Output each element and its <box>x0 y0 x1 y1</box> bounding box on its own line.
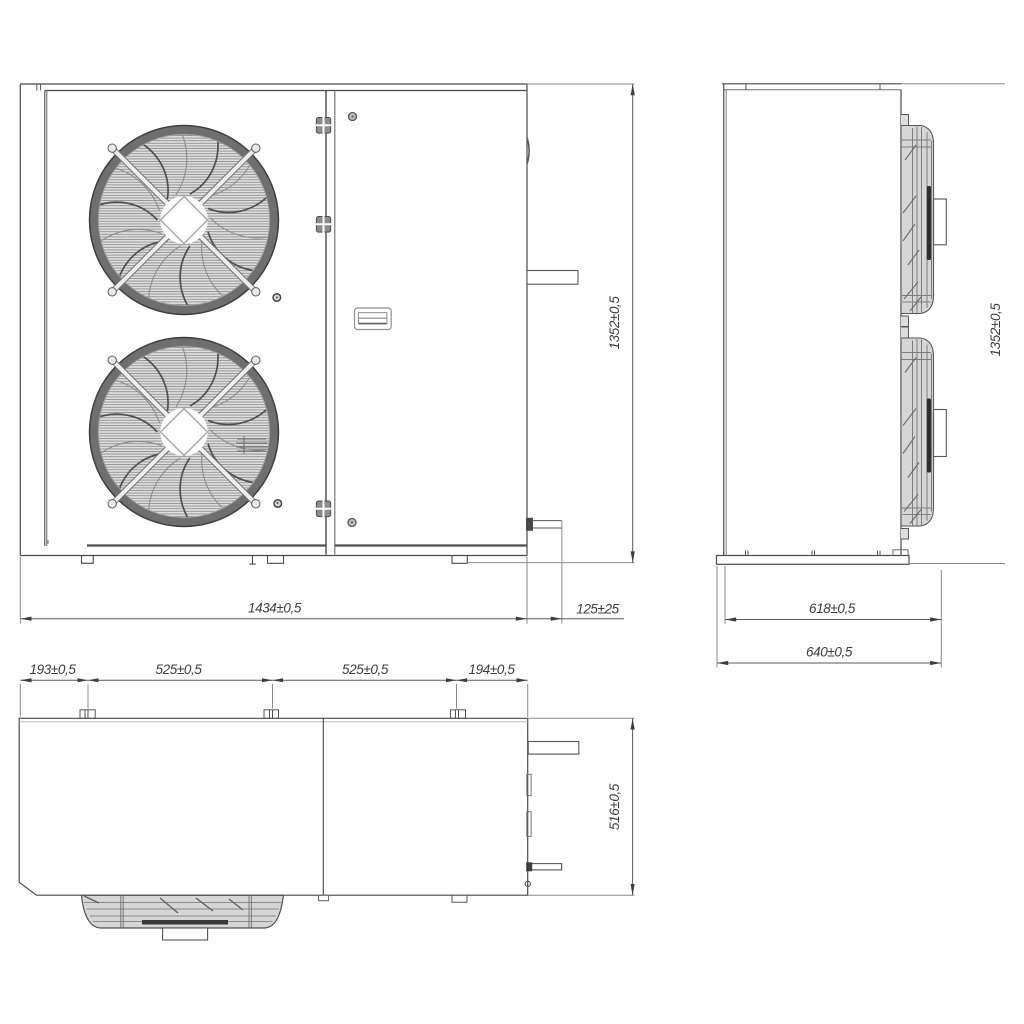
svg-text:516±0,5: 516±0,5 <box>607 783 622 830</box>
svg-text:525±0,5: 525±0,5 <box>156 662 203 677</box>
svg-text:1434±0,5: 1434±0,5 <box>248 601 302 616</box>
svg-text:640±0,5: 640±0,5 <box>806 645 853 660</box>
svg-text:1352±0,5: 1352±0,5 <box>988 303 1003 357</box>
svg-text:618±0,5: 618±0,5 <box>809 601 856 616</box>
svg-text:193±0,5: 193±0,5 <box>30 662 77 677</box>
svg-text:525±0,5: 525±0,5 <box>342 662 389 677</box>
svg-text:125±25: 125±25 <box>576 602 619 617</box>
svg-text:1352±0,5: 1352±0,5 <box>607 296 622 350</box>
svg-text:194±0,5: 194±0,5 <box>469 662 516 677</box>
